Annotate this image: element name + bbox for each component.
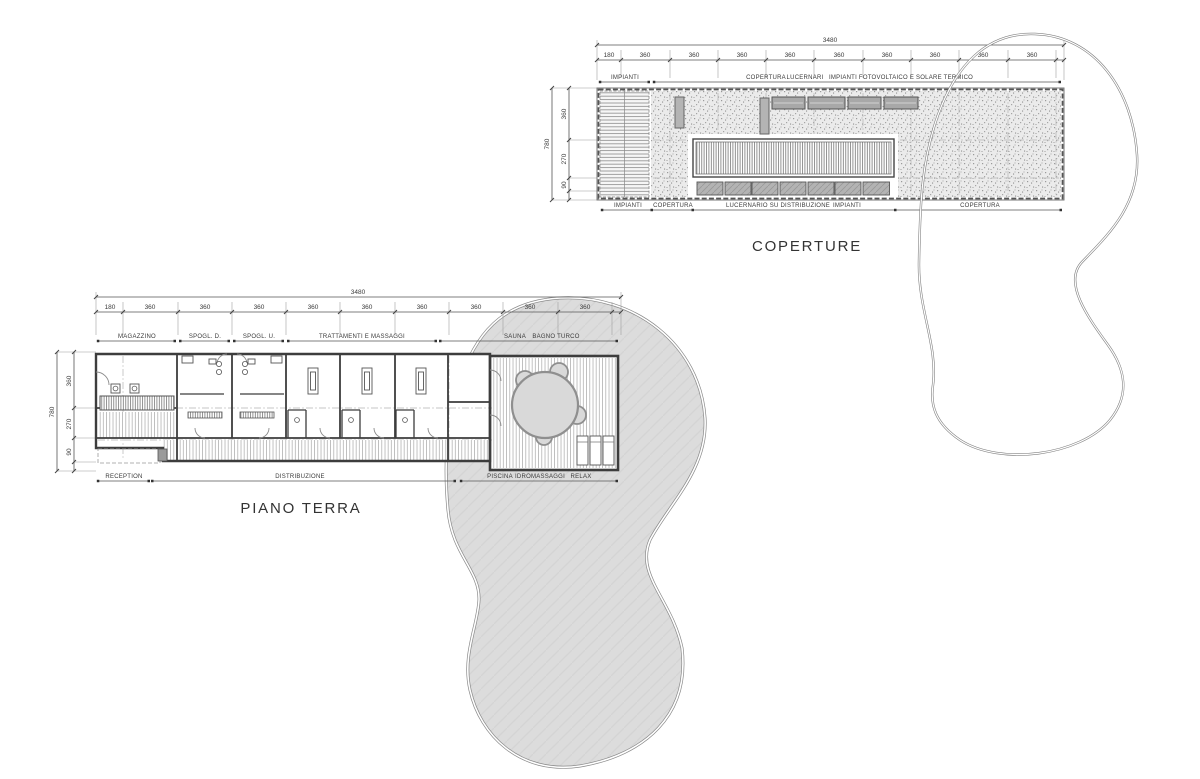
massage-table-pad bbox=[311, 372, 316, 390]
skylight-louvres bbox=[696, 142, 891, 174]
plan-title-coperture: COPERTURE bbox=[752, 238, 862, 255]
locker bbox=[209, 359, 216, 364]
room-label-magazzino: MAGAZZINO bbox=[118, 334, 156, 340]
dim-label: 780 bbox=[544, 138, 551, 149]
massage-table-pad bbox=[365, 372, 370, 390]
room-label-idromassaggi: IDROMASSAGGI bbox=[515, 474, 565, 480]
wc-fixture bbox=[242, 369, 247, 374]
dim-label: 3480 bbox=[823, 37, 838, 44]
cop-dim-ticks bbox=[595, 43, 1066, 62]
room-label-bagno-turco: BAGNO TURCO bbox=[532, 334, 579, 340]
roof-panel bbox=[863, 182, 890, 195]
lounger bbox=[603, 436, 614, 465]
roof-label-copertura-bottom: COPERTURA bbox=[653, 203, 693, 209]
roof-label-impianti2-bottom: IMPIANTI bbox=[833, 203, 861, 209]
bench bbox=[240, 412, 274, 418]
dim-label: 360 bbox=[66, 375, 73, 386]
cop-dimension-lines bbox=[597, 45, 1064, 60]
room-label-sauna: SAUNA bbox=[504, 334, 526, 340]
wc-fixture bbox=[216, 369, 221, 374]
roof-label-copertura2-bottom: COPERTURA bbox=[960, 203, 1000, 209]
dim-label: 3480 bbox=[351, 289, 366, 296]
dim-label: 360 bbox=[930, 52, 941, 59]
room-label-trattamenti: TRATTAMENTI E MASSAGGI bbox=[319, 334, 405, 340]
reception-floor-hatch bbox=[98, 412, 176, 438]
pt-building bbox=[96, 354, 618, 470]
architectural-drawing-canvas: 3480 180 360 360 360 360 360 360 360 360… bbox=[0, 0, 1200, 779]
dim-label: 360 bbox=[145, 304, 156, 311]
roof-panel bbox=[808, 182, 834, 195]
dim-label: 90 bbox=[66, 448, 73, 456]
dim-label: 360 bbox=[689, 52, 700, 59]
dim-label: 360 bbox=[580, 304, 591, 311]
dim-label: 360 bbox=[640, 52, 651, 59]
bench bbox=[188, 412, 222, 418]
dim-label: 180 bbox=[105, 304, 116, 311]
roof-label-copertura-top: COPERTURA bbox=[746, 75, 786, 81]
roof-body bbox=[597, 88, 1064, 200]
room-label-spogl-u: SPOGL. U. bbox=[243, 334, 275, 340]
plan-title-piano-terra: PIANO TERRA bbox=[240, 500, 361, 517]
lounger bbox=[577, 436, 588, 465]
dim-label: 360 bbox=[1027, 52, 1038, 59]
roof-panel bbox=[780, 182, 806, 195]
roof-label-lucernari-top: LUCERNARI bbox=[787, 75, 824, 81]
wc-fixture bbox=[349, 418, 354, 423]
dim-label: 780 bbox=[49, 406, 56, 417]
dim-label: 360 bbox=[882, 52, 893, 59]
room-label-distribuzione: DISTRIBUZIONE bbox=[275, 474, 325, 480]
roof-panel bbox=[697, 182, 723, 195]
lounger bbox=[590, 436, 601, 465]
room-label-reception: RECEPTION bbox=[105, 474, 142, 480]
reception-chair bbox=[111, 384, 120, 393]
locker bbox=[248, 359, 255, 364]
reception-chair bbox=[130, 384, 139, 393]
room-label-spogl-d: SPOGL. D. bbox=[189, 334, 221, 340]
dim-label: 360 bbox=[561, 108, 568, 119]
roof-panel bbox=[752, 182, 778, 195]
roof-label-impianti-top: IMPIANTI bbox=[611, 75, 639, 81]
dim-label: 360 bbox=[417, 304, 428, 311]
massage-table-pad bbox=[419, 372, 424, 390]
dim-label: 360 bbox=[254, 304, 265, 311]
dim-label: 360 bbox=[785, 52, 796, 59]
dim-label: 360 bbox=[308, 304, 319, 311]
wc-fixture bbox=[242, 361, 247, 366]
locker bbox=[271, 356, 282, 363]
wc-fixture bbox=[295, 418, 300, 423]
dim-label: 360 bbox=[834, 52, 845, 59]
dim-label: 180 bbox=[604, 52, 615, 59]
coperture-plan: 3480 180 360 360 360 360 360 360 360 360… bbox=[544, 37, 1066, 255]
wc-fixture bbox=[216, 361, 221, 366]
dim-label: 360 bbox=[200, 304, 211, 311]
reception-desk bbox=[100, 396, 174, 410]
roof-label-impianti2-top: IMPIANTI bbox=[829, 75, 857, 81]
roof-vent bbox=[675, 97, 684, 128]
dim-label: 270 bbox=[66, 418, 73, 429]
dim-label: 360 bbox=[362, 304, 373, 311]
room-label-relax: RELAX bbox=[571, 474, 592, 480]
wc-fixture bbox=[403, 418, 408, 423]
cop-left-extensions bbox=[552, 88, 599, 200]
roof-panel bbox=[725, 182, 751, 195]
dim-label: 360 bbox=[471, 304, 482, 311]
dim-label: 90 bbox=[561, 181, 568, 189]
dim-label: 270 bbox=[561, 153, 568, 164]
porch-dashed-outline bbox=[98, 449, 160, 463]
roof-label-impianti-bottom: IMPIANTI bbox=[614, 203, 642, 209]
corridor-floor-hatch bbox=[163, 440, 489, 460]
plan-drawing-svg: 3480 180 360 360 360 360 360 360 360 360… bbox=[0, 0, 1200, 779]
roof-label-lucernario-bottom: LUCERNARIO SU DISTRIBUZIONE bbox=[726, 203, 830, 209]
roof-vent bbox=[760, 98, 769, 134]
pool-basin bbox=[512, 372, 578, 438]
locker bbox=[182, 356, 193, 363]
dim-label: 360 bbox=[737, 52, 748, 59]
dim-label: 360 bbox=[525, 304, 536, 311]
entrance-pillar bbox=[158, 449, 167, 461]
room-label-piscina: PISCINA bbox=[487, 474, 513, 480]
roof-panel bbox=[835, 182, 861, 195]
pt-left-extensions bbox=[57, 352, 96, 471]
